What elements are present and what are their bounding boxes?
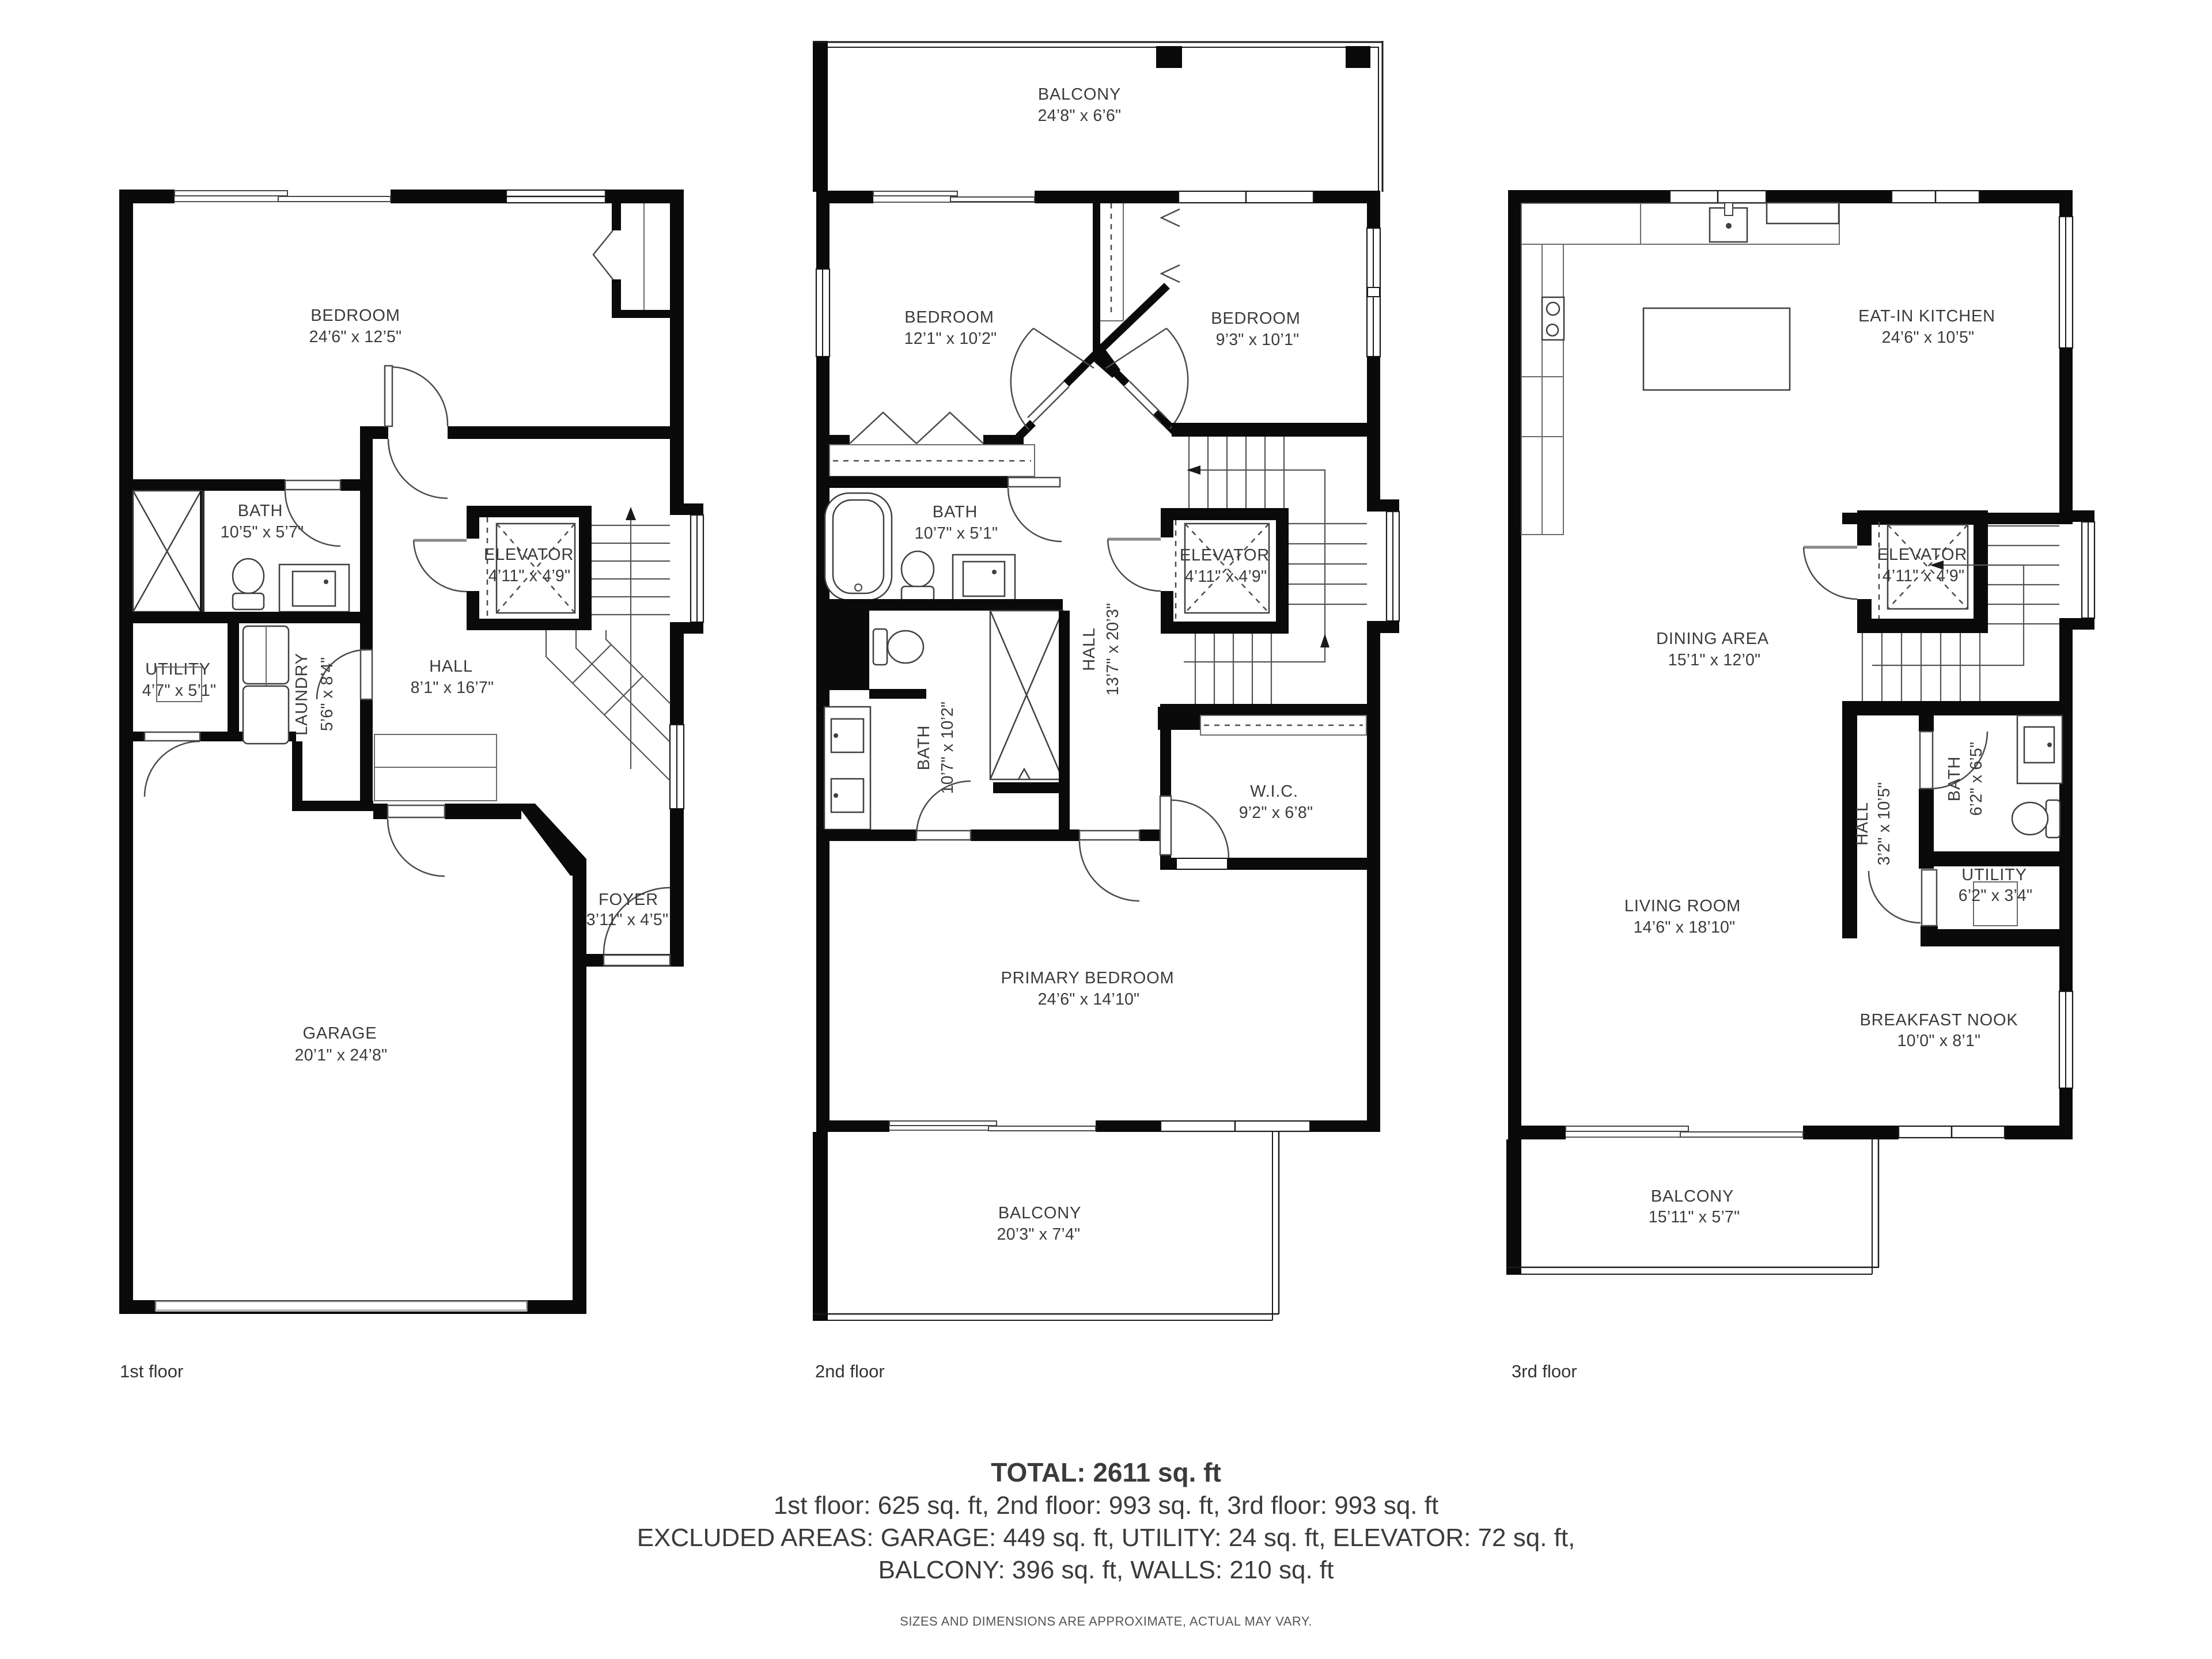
svg-text:6’2" x 3’4": 6’2" x 3’4" <box>1959 887 2033 905</box>
svg-text:10’5" x 5’7": 10’5" x 5’7" <box>221 523 304 541</box>
svg-text:3’2" x 10’5": 3’2" x 10’5" <box>1875 782 1893 866</box>
svg-text:10’7" x 10’2": 10’7" x 10’2" <box>938 702 957 794</box>
svg-text:10’7" x 5’1": 10’7" x 5’1" <box>915 524 998 543</box>
svg-text:10’0" x 8’1": 10’0" x 8’1" <box>1897 1032 1981 1050</box>
svg-text:BALCONY: BALCONY <box>1651 1187 1734 1206</box>
svg-text:9’2" x 6’8": 9’2" x 6’8" <box>1239 804 1313 822</box>
svg-text:12’1" x 10’2": 12’1" x 10’2" <box>904 329 997 348</box>
svg-text:20’3" x 7’4": 20’3" x 7’4" <box>997 1225 1081 1244</box>
svg-text:BALCONY: BALCONY <box>1038 85 1121 104</box>
svg-text:BALCONY: BALCONY <box>998 1204 1081 1222</box>
svg-text:PRIMARY BEDROOM: PRIMARY BEDROOM <box>1001 969 1175 987</box>
svg-text:9’3" x 10’1": 9’3" x 10’1" <box>1216 331 1300 349</box>
svg-text:GARAGE: GARAGE <box>303 1024 377 1043</box>
svg-text:1st floor: 1st floor <box>120 1361 183 1381</box>
svg-text:BREAKFAST NOOK: BREAKFAST NOOK <box>1860 1011 2018 1029</box>
svg-text:EXCLUDED AREAS: GARAGE: 449 sq: EXCLUDED AREAS: GARAGE: 449 sq. ft, UTIL… <box>637 1524 1575 1552</box>
svg-text:DINING AREA: DINING AREA <box>1656 630 1769 648</box>
svg-text:BATH: BATH <box>1945 756 1964 801</box>
svg-text:BATH: BATH <box>915 725 933 770</box>
svg-text:HALL: HALL <box>1080 627 1099 671</box>
svg-text:3rd floor: 3rd floor <box>1512 1361 1577 1381</box>
svg-text:ELEVATOR: ELEVATOR <box>1180 546 1270 565</box>
svg-text:15’11" x 5’7": 15’11" x 5’7" <box>1649 1208 1740 1226</box>
svg-text:5’6" x 8’4": 5’6" x 8’4" <box>318 657 336 732</box>
svg-text:UTILITY: UTILITY <box>1961 866 2027 884</box>
svg-text:20’1" x 24’8": 20’1" x 24’8" <box>295 1046 388 1065</box>
svg-text:2nd floor: 2nd floor <box>815 1361 885 1381</box>
svg-text:LIVING ROOM: LIVING ROOM <box>1624 897 1741 915</box>
svg-text:BALCONY: 396 sq. ft, WALLS: 21: BALCONY: 396 sq. ft, WALLS: 210 sq. ft <box>878 1556 1334 1584</box>
svg-text:8’1" x 16’7": 8’1" x 16’7" <box>411 679 494 697</box>
svg-text:4’11" x 4’9": 4’11" x 4’9" <box>1883 567 1965 585</box>
svg-text:BATH: BATH <box>238 502 283 520</box>
svg-text:LAUNDRY: LAUNDRY <box>293 653 311 736</box>
svg-text:EAT-IN KITCHEN: EAT-IN KITCHEN <box>1858 307 1995 325</box>
svg-text:W.I.C.: W.I.C. <box>1250 782 1298 801</box>
svg-text:TOTAL: 2611 sq. ft: TOTAL: 2611 sq. ft <box>991 1457 1221 1487</box>
svg-text:BEDROOM: BEDROOM <box>1211 309 1300 328</box>
svg-text:14’6" x 18’10": 14’6" x 18’10" <box>1634 918 1736 937</box>
svg-text:24’6" x 10’5": 24’6" x 10’5" <box>1882 328 1975 347</box>
svg-text:BEDROOM: BEDROOM <box>310 306 400 325</box>
svg-text:HALL: HALL <box>429 657 473 676</box>
svg-text:UTILITY: UTILITY <box>145 660 211 679</box>
svg-text:BEDROOM: BEDROOM <box>904 308 994 327</box>
svg-text:FOYER: FOYER <box>599 891 658 909</box>
svg-text:4’11" x 4’9": 4’11" x 4’9" <box>1185 567 1267 586</box>
svg-text:BATH: BATH <box>933 503 978 521</box>
svg-text:SIZES AND DIMENSIONS ARE APPRO: SIZES AND DIMENSIONS ARE APPROXIMATE, AC… <box>900 1614 1312 1628</box>
svg-text:15’1" x 12’0": 15’1" x 12’0" <box>1668 651 1761 669</box>
svg-text:4’11" x 4’9": 4’11" x 4’9" <box>488 567 571 585</box>
svg-text:HALL: HALL <box>1853 802 1872 846</box>
svg-text:4’7" x 5’1": 4’7" x 5’1" <box>142 681 217 700</box>
svg-text:ELEVATOR: ELEVATOR <box>1877 546 1967 564</box>
svg-text:ELEVATOR: ELEVATOR <box>484 546 574 564</box>
svg-text:24’6" x 12’5": 24’6" x 12’5" <box>309 328 402 346</box>
svg-text:6’2" x 6’5": 6’2" x 6’5" <box>1967 742 1986 816</box>
svg-text:1st floor: 625 sq. ft, 2nd flo: 1st floor: 625 sq. ft, 2nd floor: 993 sq… <box>774 1491 1438 1520</box>
svg-text:24’8" x 6’6": 24’8" x 6’6" <box>1038 107 1122 125</box>
svg-text:24’6" x 14’10": 24’6" x 14’10" <box>1038 990 1140 1009</box>
svg-text:3’11" x 4’5": 3’11" x 4’5" <box>586 911 669 929</box>
svg-text:13’7" x 20’3": 13’7" x 20’3" <box>1104 603 1122 696</box>
